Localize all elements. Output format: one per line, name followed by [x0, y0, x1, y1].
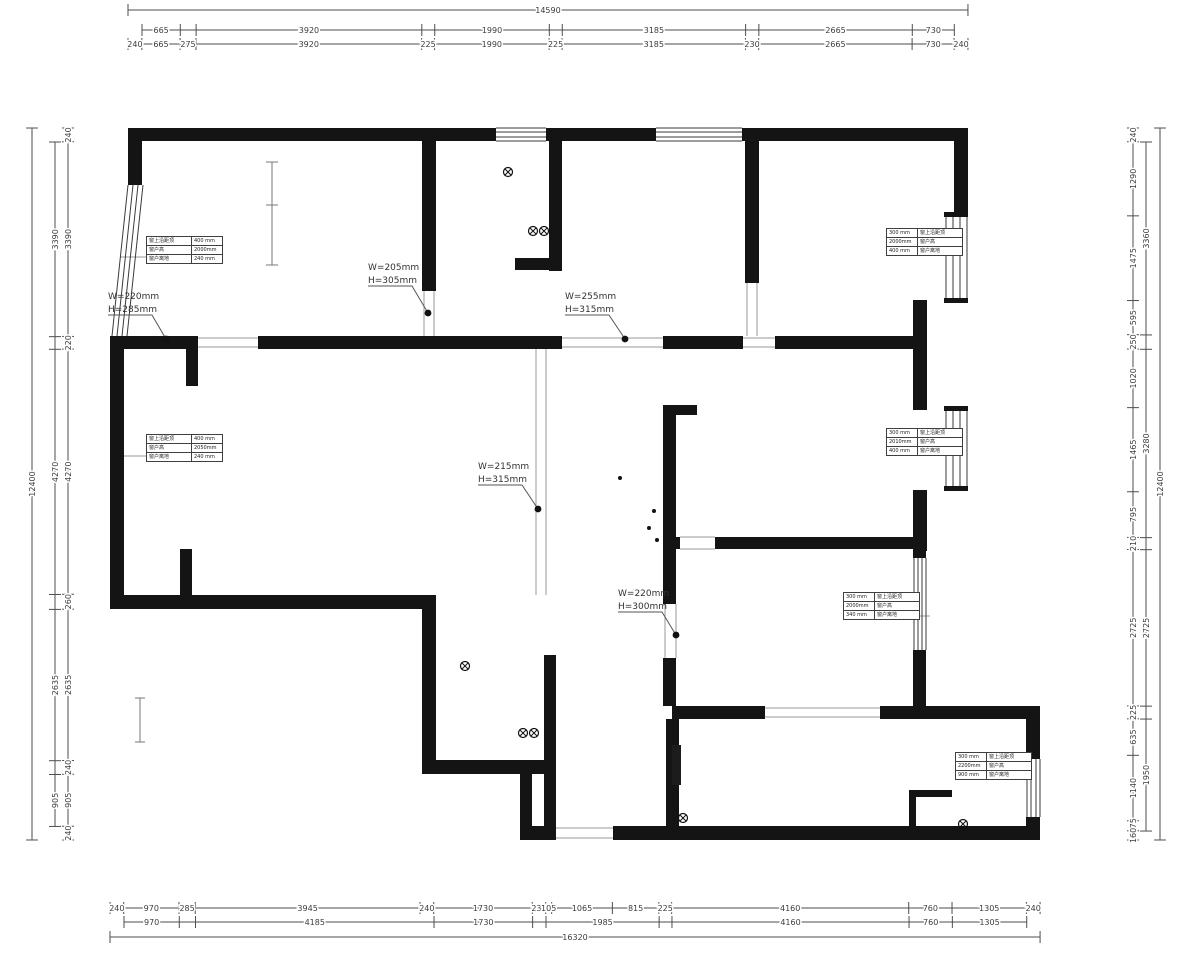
spec-value: 2000mm: [887, 238, 918, 246]
dim-label: 260: [64, 594, 73, 609]
wall-segment: [742, 128, 968, 141]
dim-label: 240: [109, 904, 124, 913]
dim-chain-right-outer: 12400: [1154, 128, 1166, 840]
spec-label: 窗户高: [918, 438, 962, 446]
wall-segment: [546, 128, 656, 141]
dim-label: 760: [923, 918, 938, 927]
dim-label: 1985: [592, 918, 612, 927]
dim-label: 595: [1129, 310, 1138, 325]
dim-chain-top-row2: 6653920199031852665730: [142, 24, 954, 36]
wall-segment: [954, 141, 968, 217]
spec-value: 240 mm: [192, 255, 222, 263]
dim-label: 1305: [979, 918, 999, 927]
spec-label: 窗户高: [875, 602, 919, 610]
door-width-label: W=220mm: [108, 292, 159, 302]
door-width-label: W=220mm: [618, 589, 669, 599]
spec-label: 窗上沿距顶: [918, 229, 962, 237]
spec-value: 2200mm: [956, 762, 987, 770]
dim-label: 1730: [473, 904, 493, 913]
wall-segment: [549, 141, 562, 271]
door-width-label: W=215mm: [478, 462, 529, 472]
dim-label: 240: [953, 40, 968, 49]
table-row: 窗户高2050mm: [147, 443, 222, 452]
wall-segment: [186, 336, 198, 386]
dim-label: 730: [926, 26, 941, 35]
window-spec-table: 300 mm窗上沿距顶2200mm窗户高900 mm窗户离地: [955, 752, 1032, 780]
dim-chain-top-row3: 2406652753920225199022531852302665730240: [127, 38, 968, 50]
spec-label: 窗户离地: [147, 453, 192, 461]
table-row: 窗户离地240 mm: [147, 452, 222, 461]
dim-label: 210: [1129, 536, 1138, 551]
dim-label: 2665: [825, 26, 845, 35]
table-row: 300 mm窗上沿距顶: [887, 429, 962, 437]
table-row: 2000mm窗户高: [887, 237, 962, 246]
door-width-label: W=205mm: [368, 263, 419, 273]
leader-dot: [163, 336, 170, 343]
point-marker: [618, 476, 622, 480]
spec-value: 2000mm: [844, 602, 875, 610]
dim-label: 240: [1026, 904, 1041, 913]
spec-label: 窗户高: [987, 762, 1031, 770]
floor-drain-icon: [679, 814, 688, 823]
wall-segment: [944, 486, 968, 491]
spec-value: 300 mm: [887, 229, 918, 237]
table-row: 300 mm窗上沿距顶: [887, 229, 962, 237]
dim-chain-bottom-row1: 2409702853945240173023510510658152254160…: [109, 902, 1041, 914]
dim-label: 3185: [644, 40, 664, 49]
dim-label: 4185: [305, 918, 325, 927]
leader-dot: [535, 506, 542, 513]
spec-label: 窗户离地: [918, 247, 962, 255]
wall-segment: [663, 537, 680, 549]
leader-line: [368, 286, 428, 313]
wall-segment: [672, 706, 765, 719]
point-marker: [652, 509, 656, 513]
dim-label: 2635: [64, 675, 73, 695]
spec-value: 2050mm: [192, 444, 222, 452]
dim-chain-left-outer: 12400: [26, 128, 38, 840]
dim-label: 1990: [482, 40, 502, 49]
floor-drain-icon: [530, 729, 539, 738]
dim-label: 3185: [644, 26, 664, 35]
dim-label: 1950: [1142, 765, 1151, 785]
dim-label: 240: [1129, 127, 1138, 142]
dim-label: 230: [744, 40, 759, 49]
dim-label: 635: [1129, 729, 1138, 744]
dim-label: 905: [64, 793, 73, 808]
wall-segment: [544, 655, 556, 840]
door-size-annotation: W=215mmH=315mm: [478, 462, 541, 512]
wall-segment: [422, 141, 436, 291]
wall-segment: [110, 595, 436, 609]
wall-segment: [944, 212, 968, 217]
wall-segment: [913, 650, 926, 708]
dim-label: 760: [923, 904, 938, 913]
dim-label: 3920: [299, 26, 319, 35]
dim-chain-left-mid: 339042702635905: [49, 142, 61, 826]
dim-label: 160: [1129, 828, 1138, 843]
dim-label: 4160: [780, 904, 800, 913]
table-row: 900 mm窗户离地: [956, 770, 1031, 779]
window-spec-table: 300 mm窗上沿距顶2010mm窗户高400 mm窗户离地: [886, 428, 963, 456]
door-height-label: H=285mm: [108, 305, 157, 315]
dim-label: 3945: [297, 904, 317, 913]
dim-label: 905: [51, 793, 60, 808]
dim-label: 240: [64, 825, 73, 840]
dim-label: 4270: [64, 461, 73, 481]
door-height-label: H=305mm: [368, 276, 417, 286]
point-marker: [647, 526, 651, 530]
table-row: 340 mm窗户离地: [844, 610, 919, 619]
window-spec-table: 300 mm窗上沿距顶2000mm窗户高340 mm窗户离地: [843, 592, 920, 620]
floor-plan-page: 1459066539201990318526657302406652753920…: [0, 0, 1200, 967]
door-height-label: H=315mm: [478, 475, 527, 485]
dim-label: 1140: [1129, 778, 1138, 798]
wall-segment: [422, 609, 436, 774]
dimension-chains-layer: 1459066539201990318526657302406652753920…: [26, 4, 1166, 943]
spec-value: 240 mm: [192, 453, 222, 461]
wall-segment: [128, 128, 496, 141]
wall-segment: [422, 760, 552, 774]
spec-label: 窗上沿距顶: [147, 435, 192, 443]
dim-label: 285: [179, 904, 194, 913]
dim-chain-top-overall: 14590: [128, 4, 968, 16]
dim-label: 970: [144, 904, 159, 913]
dim-label: 3280: [1142, 433, 1151, 453]
window-spec-table: 300 mm窗上沿距顶2000mm窗户高400 mm窗户离地: [886, 228, 963, 256]
wall-segment: [663, 658, 676, 706]
wall-segment: [715, 537, 927, 549]
floor-drain-icon: [529, 227, 538, 236]
dim-chain-right-mid: 3360328027251950: [1140, 142, 1152, 831]
dim-label: 225: [1129, 705, 1138, 720]
dim-label: 2725: [1129, 618, 1138, 638]
spec-value: 400 mm: [887, 247, 918, 255]
electric-box-label: [672, 745, 681, 785]
leader-dot: [673, 632, 680, 639]
dim-label: 2665: [825, 40, 845, 49]
dim-label: 16320: [562, 933, 587, 942]
dim-label: 665: [154, 26, 169, 35]
dim-chain-left-inner: 240339022042702602635240905240: [62, 127, 74, 841]
dim-label: 3390: [64, 229, 73, 249]
floor-drain-icon: [519, 729, 528, 738]
spec-label: 窗户高: [147, 246, 192, 254]
spec-label: 窗户高: [147, 444, 192, 452]
floor-plan-drawing: 1459066539201990318526657302406652753920…: [0, 0, 1200, 967]
dim-label: 815: [628, 904, 643, 913]
dim-label: 12400: [1156, 471, 1165, 496]
spec-label: 窗户离地: [147, 255, 192, 263]
dim-label: 220: [64, 335, 73, 350]
dim-label: 240: [64, 127, 73, 142]
dim-label: 2725: [1142, 618, 1151, 638]
dim-label: 1065: [572, 904, 592, 913]
table-row: 窗户高2000mm: [147, 245, 222, 254]
dim-label: 105: [541, 904, 556, 913]
dim-label: 225: [548, 40, 563, 49]
leader-line: [565, 315, 625, 339]
window-spec-table: 窗上沿距顶400 mm窗户高2000mm窗户离地240 mm: [146, 236, 223, 264]
table-row: 窗户离地240 mm: [147, 254, 222, 263]
spec-label: 窗户离地: [987, 771, 1031, 779]
spec-value: 300 mm: [887, 429, 918, 437]
wall-segment: [258, 336, 430, 349]
wall-segment: [110, 336, 186, 349]
leader-line: [618, 612, 676, 635]
dim-label: 730: [925, 40, 940, 49]
leader-dot: [622, 336, 629, 343]
dim-label: 1990: [482, 26, 502, 35]
table-row: 2200mm窗户高: [956, 761, 1031, 770]
spec-value: 400 mm: [192, 237, 222, 245]
dim-label: 225: [658, 904, 673, 913]
dim-label: 3360: [1142, 228, 1151, 248]
point-marker: [655, 538, 659, 542]
wall-segment: [913, 551, 926, 558]
dim-label: 665: [153, 40, 168, 49]
spec-label: 窗上沿距顶: [918, 429, 962, 437]
dim-chain-bottom-row2: 97041851730198541607601305: [124, 916, 1027, 928]
wall-segment: [430, 336, 562, 349]
dim-label: 1475: [1129, 248, 1138, 268]
door-width-label: W=255mm: [565, 292, 616, 302]
window-spec-table: 窗上沿距顶400 mm窗户高2050mm窗户离地240 mm: [146, 434, 223, 462]
table-row: 400 mm窗户离地: [887, 246, 962, 255]
wall-segment: [663, 405, 697, 415]
wall-segment: [944, 406, 968, 411]
dim-label: 225: [420, 40, 435, 49]
spec-value: 300 mm: [844, 593, 875, 601]
dim-label: 12400: [28, 471, 37, 496]
table-row: 2010mm窗户高: [887, 437, 962, 446]
dim-label: 14590: [535, 6, 560, 15]
wall-segment: [128, 141, 142, 185]
wall-segment: [944, 298, 968, 303]
dim-label: 2635: [51, 675, 60, 695]
dim-chain-right-inner: 2401290147559525010201465795210272522563…: [1127, 127, 1139, 843]
table-row: 窗上沿距顶400 mm: [147, 435, 222, 443]
dim-label: 3920: [299, 40, 319, 49]
dim-label: 275: [180, 40, 195, 49]
dim-label: 4270: [51, 462, 60, 482]
floor-drain-icon: [540, 227, 549, 236]
dim-label: 240: [127, 40, 142, 49]
wall-segment: [613, 826, 1040, 840]
spec-value: 900 mm: [956, 771, 987, 779]
leader-dot: [425, 310, 432, 317]
dim-label: 970: [144, 918, 159, 927]
spec-label: 窗户离地: [875, 611, 919, 619]
wall-segment: [909, 790, 916, 826]
spec-value: 400 mm: [887, 447, 918, 455]
dim-label: 1730: [473, 918, 493, 927]
wall-segment: [180, 549, 192, 609]
table-row: 400 mm窗户离地: [887, 446, 962, 455]
dim-label: 240: [419, 904, 434, 913]
spec-value: 340 mm: [844, 611, 875, 619]
dim-label: 1290: [1129, 169, 1138, 189]
spec-label: 窗上沿距顶: [875, 593, 919, 601]
dim-label: 3390: [51, 229, 60, 249]
door-height-label: H=315mm: [565, 305, 614, 315]
dim-label: 795: [1129, 507, 1138, 522]
table-row: 窗上沿距顶400 mm: [147, 237, 222, 245]
wall-segment: [880, 706, 1040, 719]
dim-label: 250: [1129, 334, 1138, 349]
wall-segment: [775, 336, 927, 349]
door-size-annotation: W=255mmH=315mm: [565, 292, 628, 342]
wall-segment: [515, 258, 562, 270]
spec-value: 400 mm: [192, 435, 222, 443]
dim-label: 1020: [1129, 368, 1138, 388]
spec-label: 窗上沿距顶: [147, 237, 192, 245]
dim-label: 1305: [979, 904, 999, 913]
spec-value: 2000mm: [192, 246, 222, 254]
wall-segment: [1026, 817, 1040, 840]
spec-value: 2010mm: [887, 438, 918, 446]
spec-label: 窗户高: [918, 238, 962, 246]
wall-segment: [745, 141, 759, 283]
leader-line: [478, 485, 538, 509]
wall-segment: [663, 415, 676, 537]
spec-label: 窗上沿距顶: [987, 753, 1031, 761]
spec-value: 300 mm: [956, 753, 987, 761]
dim-label: 240: [64, 760, 73, 775]
floor-drain-icon: [504, 168, 513, 177]
dim-chain-bottom-row3: 16320: [110, 931, 1040, 943]
wall-segment: [110, 336, 124, 609]
floor-drain-icon: [461, 662, 470, 671]
table-row: 2000mm窗户高: [844, 601, 919, 610]
door-size-annotation: W=205mmH=305mm: [368, 263, 431, 316]
door-height-label: H=300mm: [618, 602, 667, 612]
spec-label: 窗户离地: [918, 447, 962, 455]
wall-segment: [663, 336, 743, 349]
dim-label: 4160: [780, 918, 800, 927]
dim-label: 1465: [1129, 440, 1138, 460]
table-row: 300 mm窗上沿距顶: [956, 753, 1031, 761]
table-row: 300 mm窗上沿距顶: [844, 593, 919, 601]
wall-segment: [913, 300, 927, 410]
